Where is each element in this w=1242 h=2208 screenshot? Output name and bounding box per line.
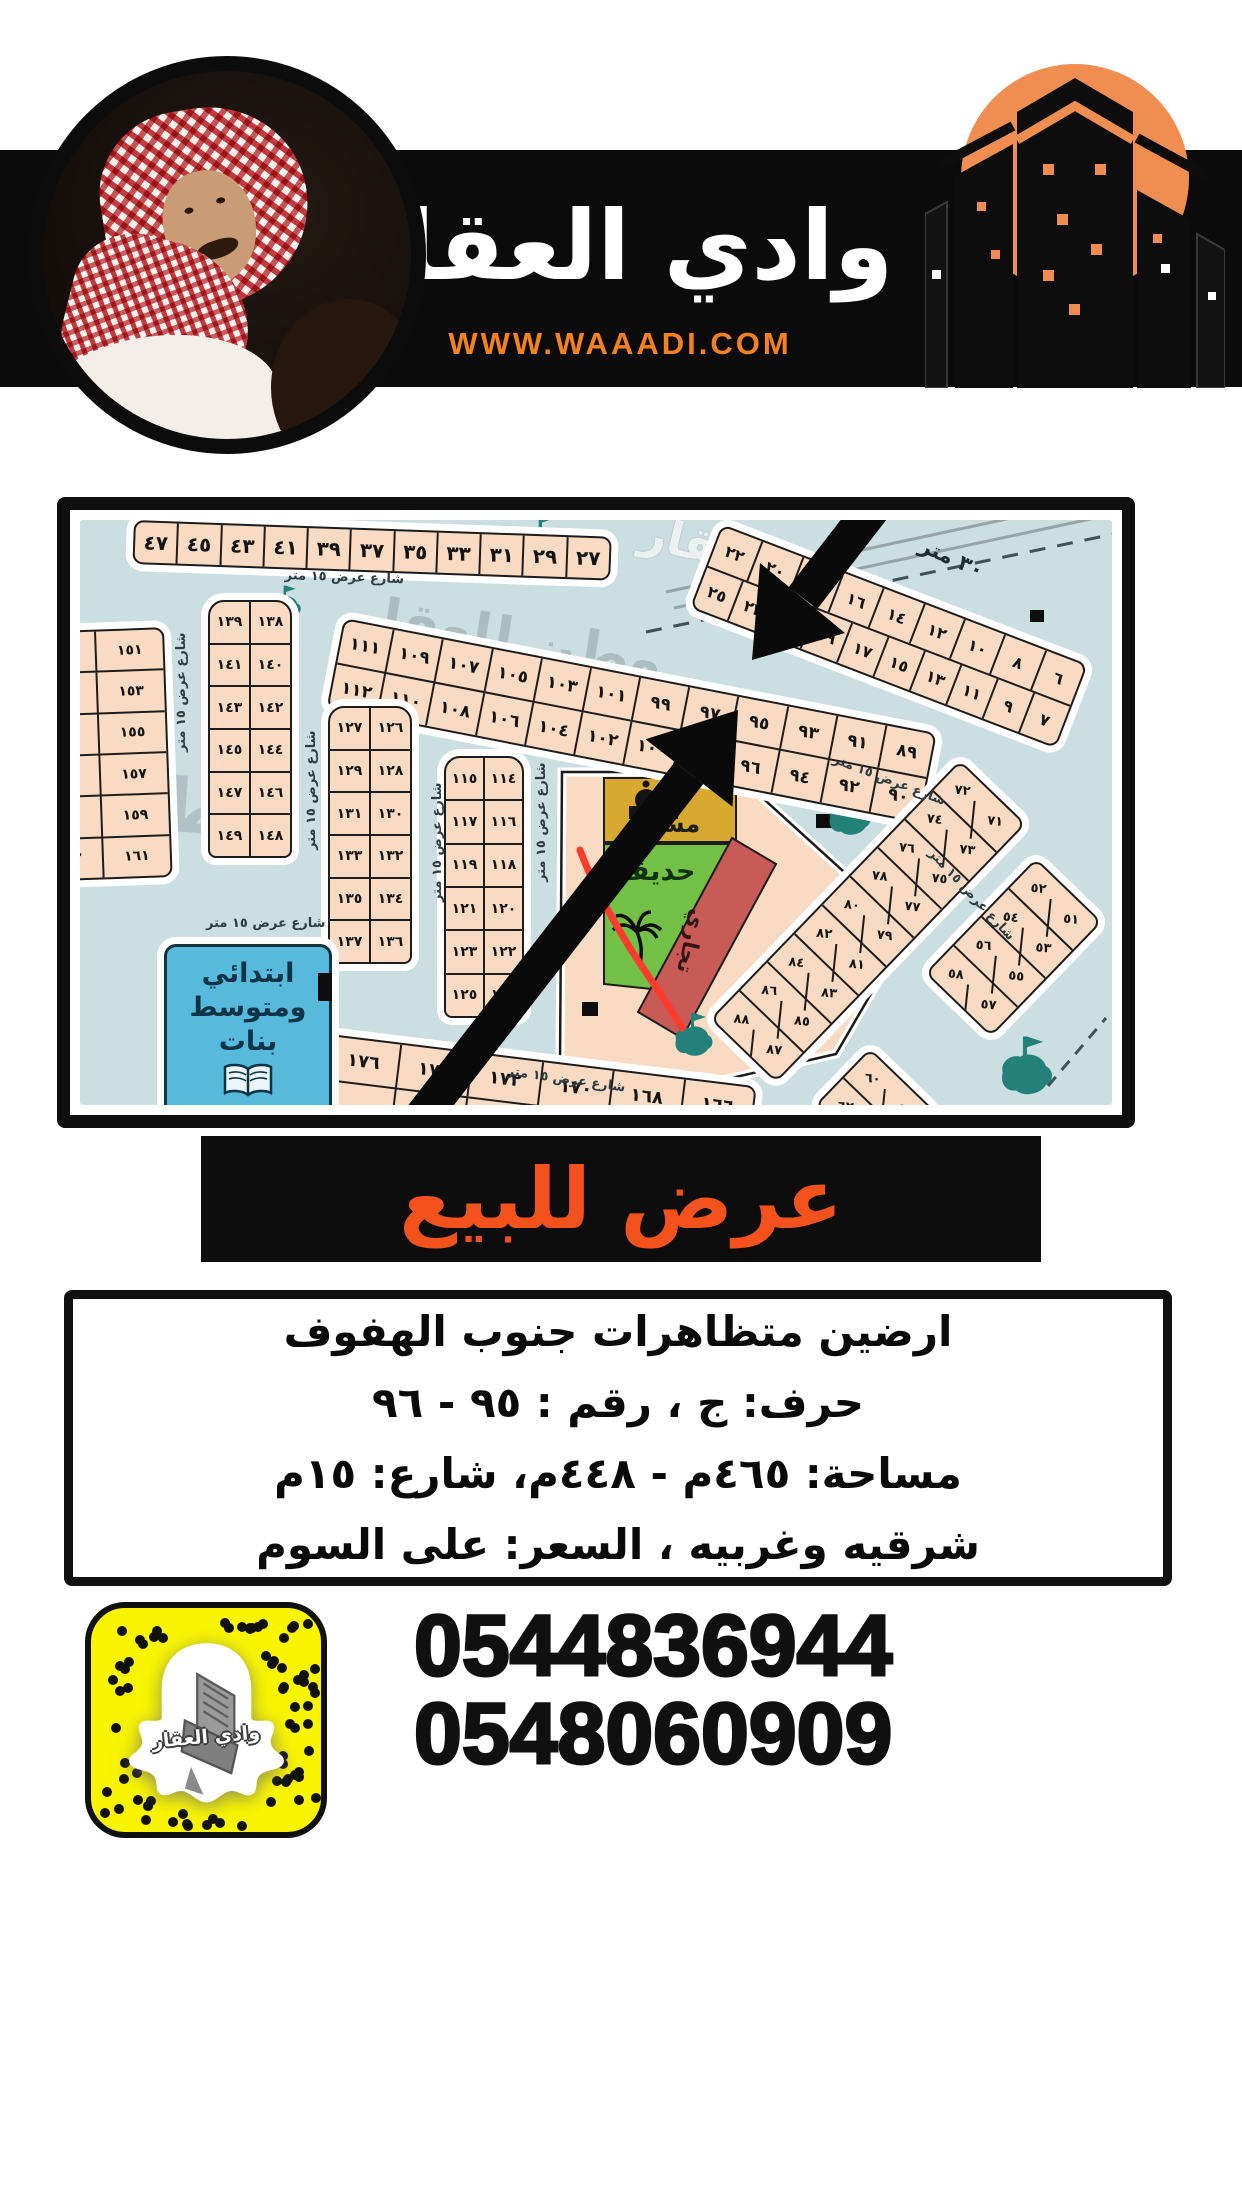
subdivision-map: وطن للعقار للعقار وطن وطن للعقار ٤٧٤٥٤٣٤…	[80, 520, 1112, 1105]
buildings-logo-icon	[925, 42, 1225, 388]
pointer-arrows	[80, 520, 1112, 1105]
listing-location: ارضين متظاهرات جنوب الهفوف	[73, 1296, 1163, 1367]
snapchat-qr-code[interactable]: وادي العقار	[85, 1602, 327, 1838]
phone-number-1[interactable]: 0544836944	[414, 1602, 1054, 1690]
website-link[interactable]: WWW.WAAADI.COM	[330, 326, 910, 362]
sale-banner: عرض للبيع	[201, 1136, 1041, 1262]
listing-plot-numbers: حرف: ج ، رقم : ٩٥ - ٩٦	[73, 1367, 1163, 1438]
listing-details-box: ارضين متظاهرات جنوب الهفوف حرف: ج ، رقم …	[64, 1290, 1172, 1586]
listing-area-street: مساحة: ٤٦٥م - ٤٤٨م، شارع: ١٥م	[73, 1438, 1163, 1509]
profile-photo	[28, 56, 426, 454]
child-silhouette	[271, 299, 426, 454]
listing-orientation-price: شرقيه وغربيه ، السعر: على السوم	[73, 1509, 1163, 1580]
snapchat-ghost-icon	[129, 1634, 284, 1804]
contact-phones: 0544836944 0548060909	[414, 1602, 1054, 1778]
phone-number-2[interactable]: 0548060909	[414, 1690, 1054, 1778]
sale-banner-text: عرض للبيع	[399, 1157, 843, 1241]
map-frame: وطن للعقار للعقار وطن وطن للعقار ٤٧٤٥٤٣٤…	[57, 497, 1135, 1128]
